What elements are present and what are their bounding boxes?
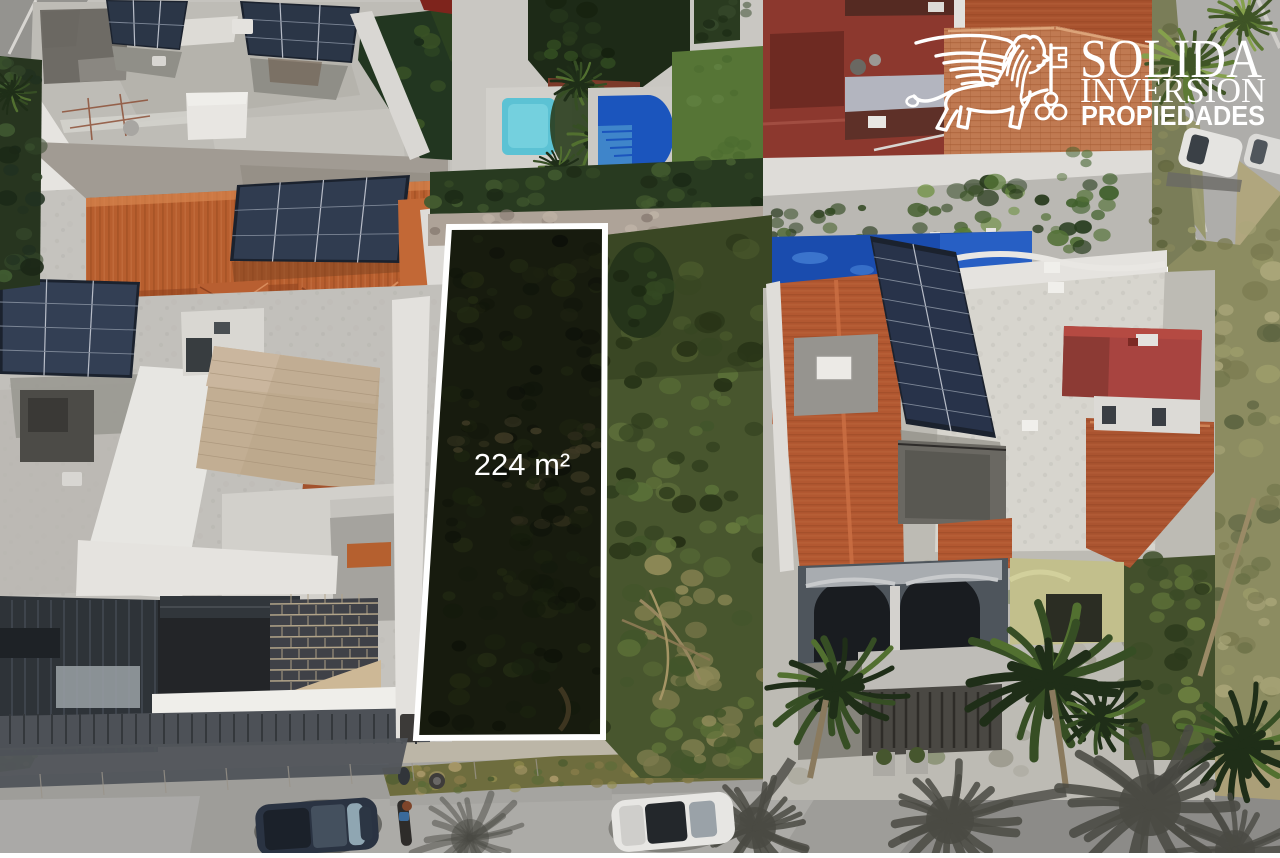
svg-text:PROPIEDADES: PROPIEDADES [1081, 100, 1265, 131]
svg-text:224 m²: 224 m² [474, 447, 570, 482]
